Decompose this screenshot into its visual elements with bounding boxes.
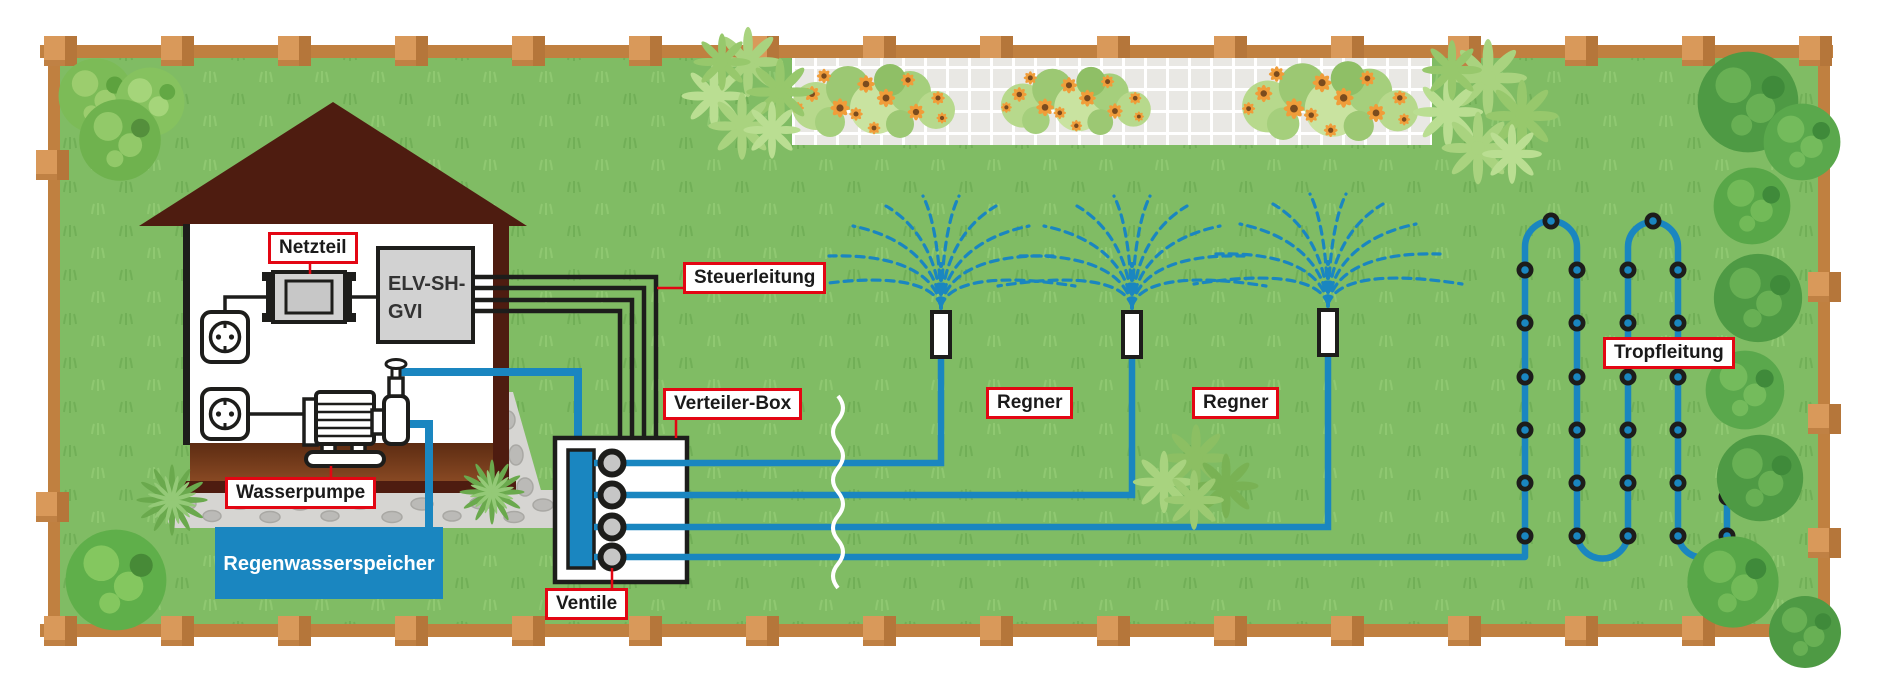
label-regner-left: Regner [986, 387, 1073, 419]
valve-icon [601, 484, 624, 507]
bush-icon [1714, 254, 1802, 342]
label-tropfleitung: Tropfleitung [1603, 337, 1735, 369]
bush-icon [66, 530, 167, 631]
garden-irrigation-diagram: ELV-SH- GVI Regenwasserspeicher [0, 0, 1878, 690]
label-wasserpumpe: Wasserpumpe [225, 477, 376, 509]
power-outlet-top [202, 312, 248, 362]
garden-irrigation-scene: ELV-SH- GVI Regenwasserspeicher [0, 0, 1878, 690]
label-regner-right: Regner [1192, 387, 1279, 419]
bush-icon [1764, 104, 1841, 181]
sprinkler-icon [1123, 312, 1141, 357]
gateway-label-line2: GVI [388, 301, 422, 323]
label-ventile: Ventile [545, 588, 628, 620]
label-netzteil: Netzteil [268, 232, 358, 264]
sprinkler-icon [1319, 310, 1337, 355]
sprinkler-icon [932, 312, 950, 357]
tank-label: Regenwasserspeicher [223, 553, 434, 575]
bush-icon [1714, 168, 1791, 245]
bush-icon [1717, 435, 1803, 521]
flower-bed [792, 58, 1432, 145]
label-steuerleitung: Steuerleitung [683, 262, 826, 294]
valve-icon [601, 546, 624, 569]
power-outlet-bottom [202, 389, 248, 439]
bush-icon [79, 99, 161, 181]
smart-home-gateway: ELV-SH- GVI [378, 248, 473, 342]
power-supply-icon [262, 272, 356, 322]
label-verteiler-box: Verteiler-Box [663, 388, 802, 420]
valve-icon [601, 452, 624, 475]
manifold [568, 450, 594, 568]
valve-icon [601, 516, 624, 539]
gateway-label-line1: ELV-SH- [388, 273, 465, 295]
bush-icon [1769, 596, 1841, 668]
bush-icon [1687, 536, 1778, 627]
house-wall [493, 224, 509, 484]
